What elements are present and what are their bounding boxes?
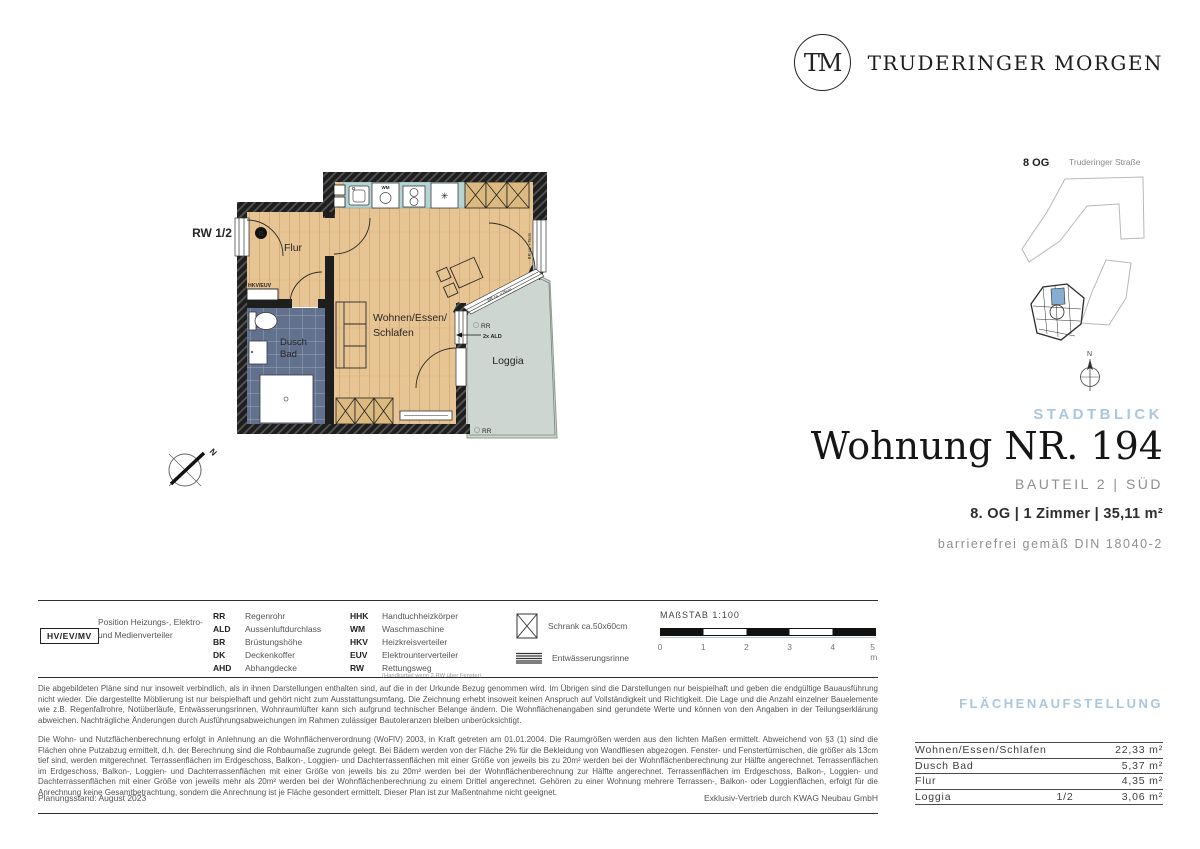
apartment-title: Wohnung NR. 194 xyxy=(811,427,1163,467)
bath-label-2: Bad xyxy=(280,349,297,360)
scale-tick: 0 xyxy=(658,642,663,652)
legend-term: Brüstungshöhe xyxy=(245,636,302,649)
legend-column-1: RRRegenrohr ALDAussenluftdurchlass BRBrü… xyxy=(213,610,321,675)
accessibility-note: barrierefrei gemäß DIN 18040-2 xyxy=(811,537,1163,551)
scale-tick: 1 xyxy=(701,642,706,652)
shower xyxy=(260,375,313,423)
loggia-window xyxy=(455,311,467,344)
rain-pipe-top-label: RR xyxy=(481,323,491,330)
legend-abbr: BR xyxy=(213,636,245,649)
legend-column-2: HHKHandtuchheizkörper WMWaschmaschine HK… xyxy=(350,610,481,679)
scale-tick: 2 xyxy=(744,642,749,652)
project-name: STADTBLICK xyxy=(811,406,1163,423)
footer: Planungsstand: August 2023 Exklusiv-Vert… xyxy=(38,793,878,803)
table-row: Wohnen/Essen/Schlafen 22,33 m² xyxy=(915,743,1163,759)
disclaimer-paragraph-1: Die abgebildeten Pläne sind nur insoweit… xyxy=(38,684,878,726)
title-block: STADTBLICK Wohnung NR. 194 BAUTEIL 2 | S… xyxy=(811,406,1163,551)
legend-term: Regenrohr xyxy=(245,610,285,623)
site-plan: 8 OG Truderinger Straße N xyxy=(995,146,1200,391)
legend-symbols: Schrank ca.50x60cm Entwässerungsrinne xyxy=(516,613,629,664)
distribution-note: Exklusiv-Vertrieb durch KWAG Neubau GmbH xyxy=(704,793,878,803)
legend-term: Handtuchheizkörper xyxy=(382,610,458,623)
scale-tick: 3 xyxy=(787,642,792,652)
legend-abbr: RR xyxy=(213,610,245,623)
area-value: 22,33 m² xyxy=(1104,744,1163,756)
legend-abbr: HHK xyxy=(350,610,382,623)
legend-abbr: HKV xyxy=(350,636,382,649)
air-inlet-label: 2x ALD xyxy=(483,334,502,340)
legend-term: Heizkreisverteiler xyxy=(382,636,447,649)
scale-bar: MAßSTAB 1:100 0 1 2 3 4 5 m xyxy=(660,610,876,654)
scale-tick: 5 m xyxy=(870,642,877,662)
building-part-label: BAUTEIL 2 | SÜD xyxy=(811,476,1163,492)
disclaimer: Die abgebildeten Pläne sind nur insoweit… xyxy=(38,684,878,798)
area-room: Dusch Bad xyxy=(915,760,1033,772)
disclaimer-paragraph-2: Die Wohn- und Nutzflächenberechnung erfo… xyxy=(38,735,878,798)
legend-abbr: AHD xyxy=(213,662,245,675)
bath-label-1: Dusch xyxy=(280,337,307,348)
area-value: 3,06 m² xyxy=(1097,791,1163,803)
living-label-1: Wohnen/Essen/ xyxy=(373,312,447,324)
rain-pipe-bottom-label: RR xyxy=(482,428,492,435)
site-north-label: N xyxy=(1087,351,1092,358)
scale-label: MAßSTAB 1:100 xyxy=(660,610,876,620)
legend-abbr: DK xyxy=(213,649,245,662)
brand-name: TRUDERINGER MORGEN xyxy=(868,51,1163,75)
building-cluster xyxy=(1031,284,1084,340)
brand-header: TM TRUDERINGER MORGEN xyxy=(794,34,1163,91)
legend-abbr: ALD xyxy=(213,623,245,636)
table-row: Dusch Bad 5,37 m² xyxy=(915,759,1163,775)
area-heading: FLÄCHENAUFSTELLUNG xyxy=(915,696,1163,711)
legend-abbr: EUV xyxy=(350,649,382,662)
area-room: Loggia xyxy=(915,791,1033,803)
sideboard xyxy=(400,411,452,420)
scale-tick: 4 xyxy=(830,642,835,652)
wardrobe-symbol-label: Schrank ca.50x60cm xyxy=(548,621,627,631)
apartment-plan: WM ✳ xyxy=(160,160,580,505)
legend: HV/EV/MV Position Heizungs-, Elektro- un… xyxy=(38,600,878,678)
site-compass: N xyxy=(1080,351,1100,391)
fridge-icon: ✳ xyxy=(441,191,449,201)
table-row: Loggia 1/2 3,06 m² xyxy=(915,790,1163,806)
entrance-marker-label: B xyxy=(258,231,263,238)
wardrobe-symbol-icon xyxy=(516,613,538,639)
drainage-symbol-label: Entwässerungsrinne xyxy=(552,653,629,663)
site-floor-label: 8 OG xyxy=(1023,157,1049,169)
loggia-label: Loggia xyxy=(492,355,524,367)
table-row: Flur 4,35 m² xyxy=(915,774,1163,790)
area-value: 5,37 m² xyxy=(1097,760,1163,772)
floor-plan-sheet: TM TRUDERINGER MORGEN 8 OG Truderinger S… xyxy=(0,0,1200,849)
scale-bar-graphic xyxy=(660,628,876,638)
area-room: Flur xyxy=(915,775,1033,787)
distributor-label: HKV/EUV xyxy=(248,283,272,289)
logo-monogram: TM xyxy=(804,49,841,77)
street-label: Truderinger Straße xyxy=(1069,157,1141,167)
entrance-window xyxy=(235,218,249,256)
legend-term: Elektrounterverteiler xyxy=(382,649,458,662)
distributor-niche xyxy=(247,289,278,300)
area-value: 4,35 m² xyxy=(1097,775,1163,787)
escape-route-label: RW 1/2 xyxy=(192,226,232,240)
planning-status: Planungsstand: August 2023 xyxy=(38,793,146,803)
kitchen-counter: WM ✳ xyxy=(343,182,465,208)
legend-term: Deckenkoffer xyxy=(245,649,295,662)
legend-term: Aussenluftdurchlass xyxy=(245,623,321,636)
living-label-2: Schlafen xyxy=(373,327,414,339)
legend-abbr: RW xyxy=(350,662,382,675)
escape-route-note: (Handkurbel wenn 2.RW über Fenster) xyxy=(382,673,481,679)
legend-term: Abhangdecke xyxy=(245,662,297,675)
tm-logo: TM xyxy=(794,34,851,91)
unit-highlight xyxy=(1051,288,1065,305)
distributor-text: Position Heizungs-, Elektro- und Medienv… xyxy=(98,616,210,642)
drainage-symbol-icon xyxy=(516,652,542,664)
bottom-rule xyxy=(38,813,878,814)
legend-term: Waschmaschine xyxy=(382,623,444,636)
area-summary: FLÄCHENAUFSTELLUNG Wohnen/Essen/Schlafen… xyxy=(915,696,1163,805)
wm-label: WM xyxy=(382,185,390,190)
distributor-box: HV/EV/MV xyxy=(40,628,99,644)
area-table: Wohnen/Essen/Schlafen 22,33 m² Dusch Bad… xyxy=(915,742,1163,805)
loggia-door-leaf xyxy=(456,348,466,386)
area-room: Wohnen/Essen/Schlafen xyxy=(915,744,1047,756)
plan-north-label: N xyxy=(208,446,219,457)
plan-compass: N xyxy=(169,446,219,486)
legend-abbr: WM xyxy=(350,623,382,636)
area-fraction: 1/2 xyxy=(1033,791,1097,803)
towel-radiator-label: HHK xyxy=(326,391,331,401)
hall-label: Flur xyxy=(284,242,303,254)
toilet xyxy=(255,313,277,330)
scale-ticks: 0 1 2 3 4 5 m xyxy=(660,642,876,654)
apartment-details: 8. OG | 1 Zimmer | 35,11 m² xyxy=(811,506,1163,522)
window-height-note: BR ca. +75cm xyxy=(527,232,532,259)
